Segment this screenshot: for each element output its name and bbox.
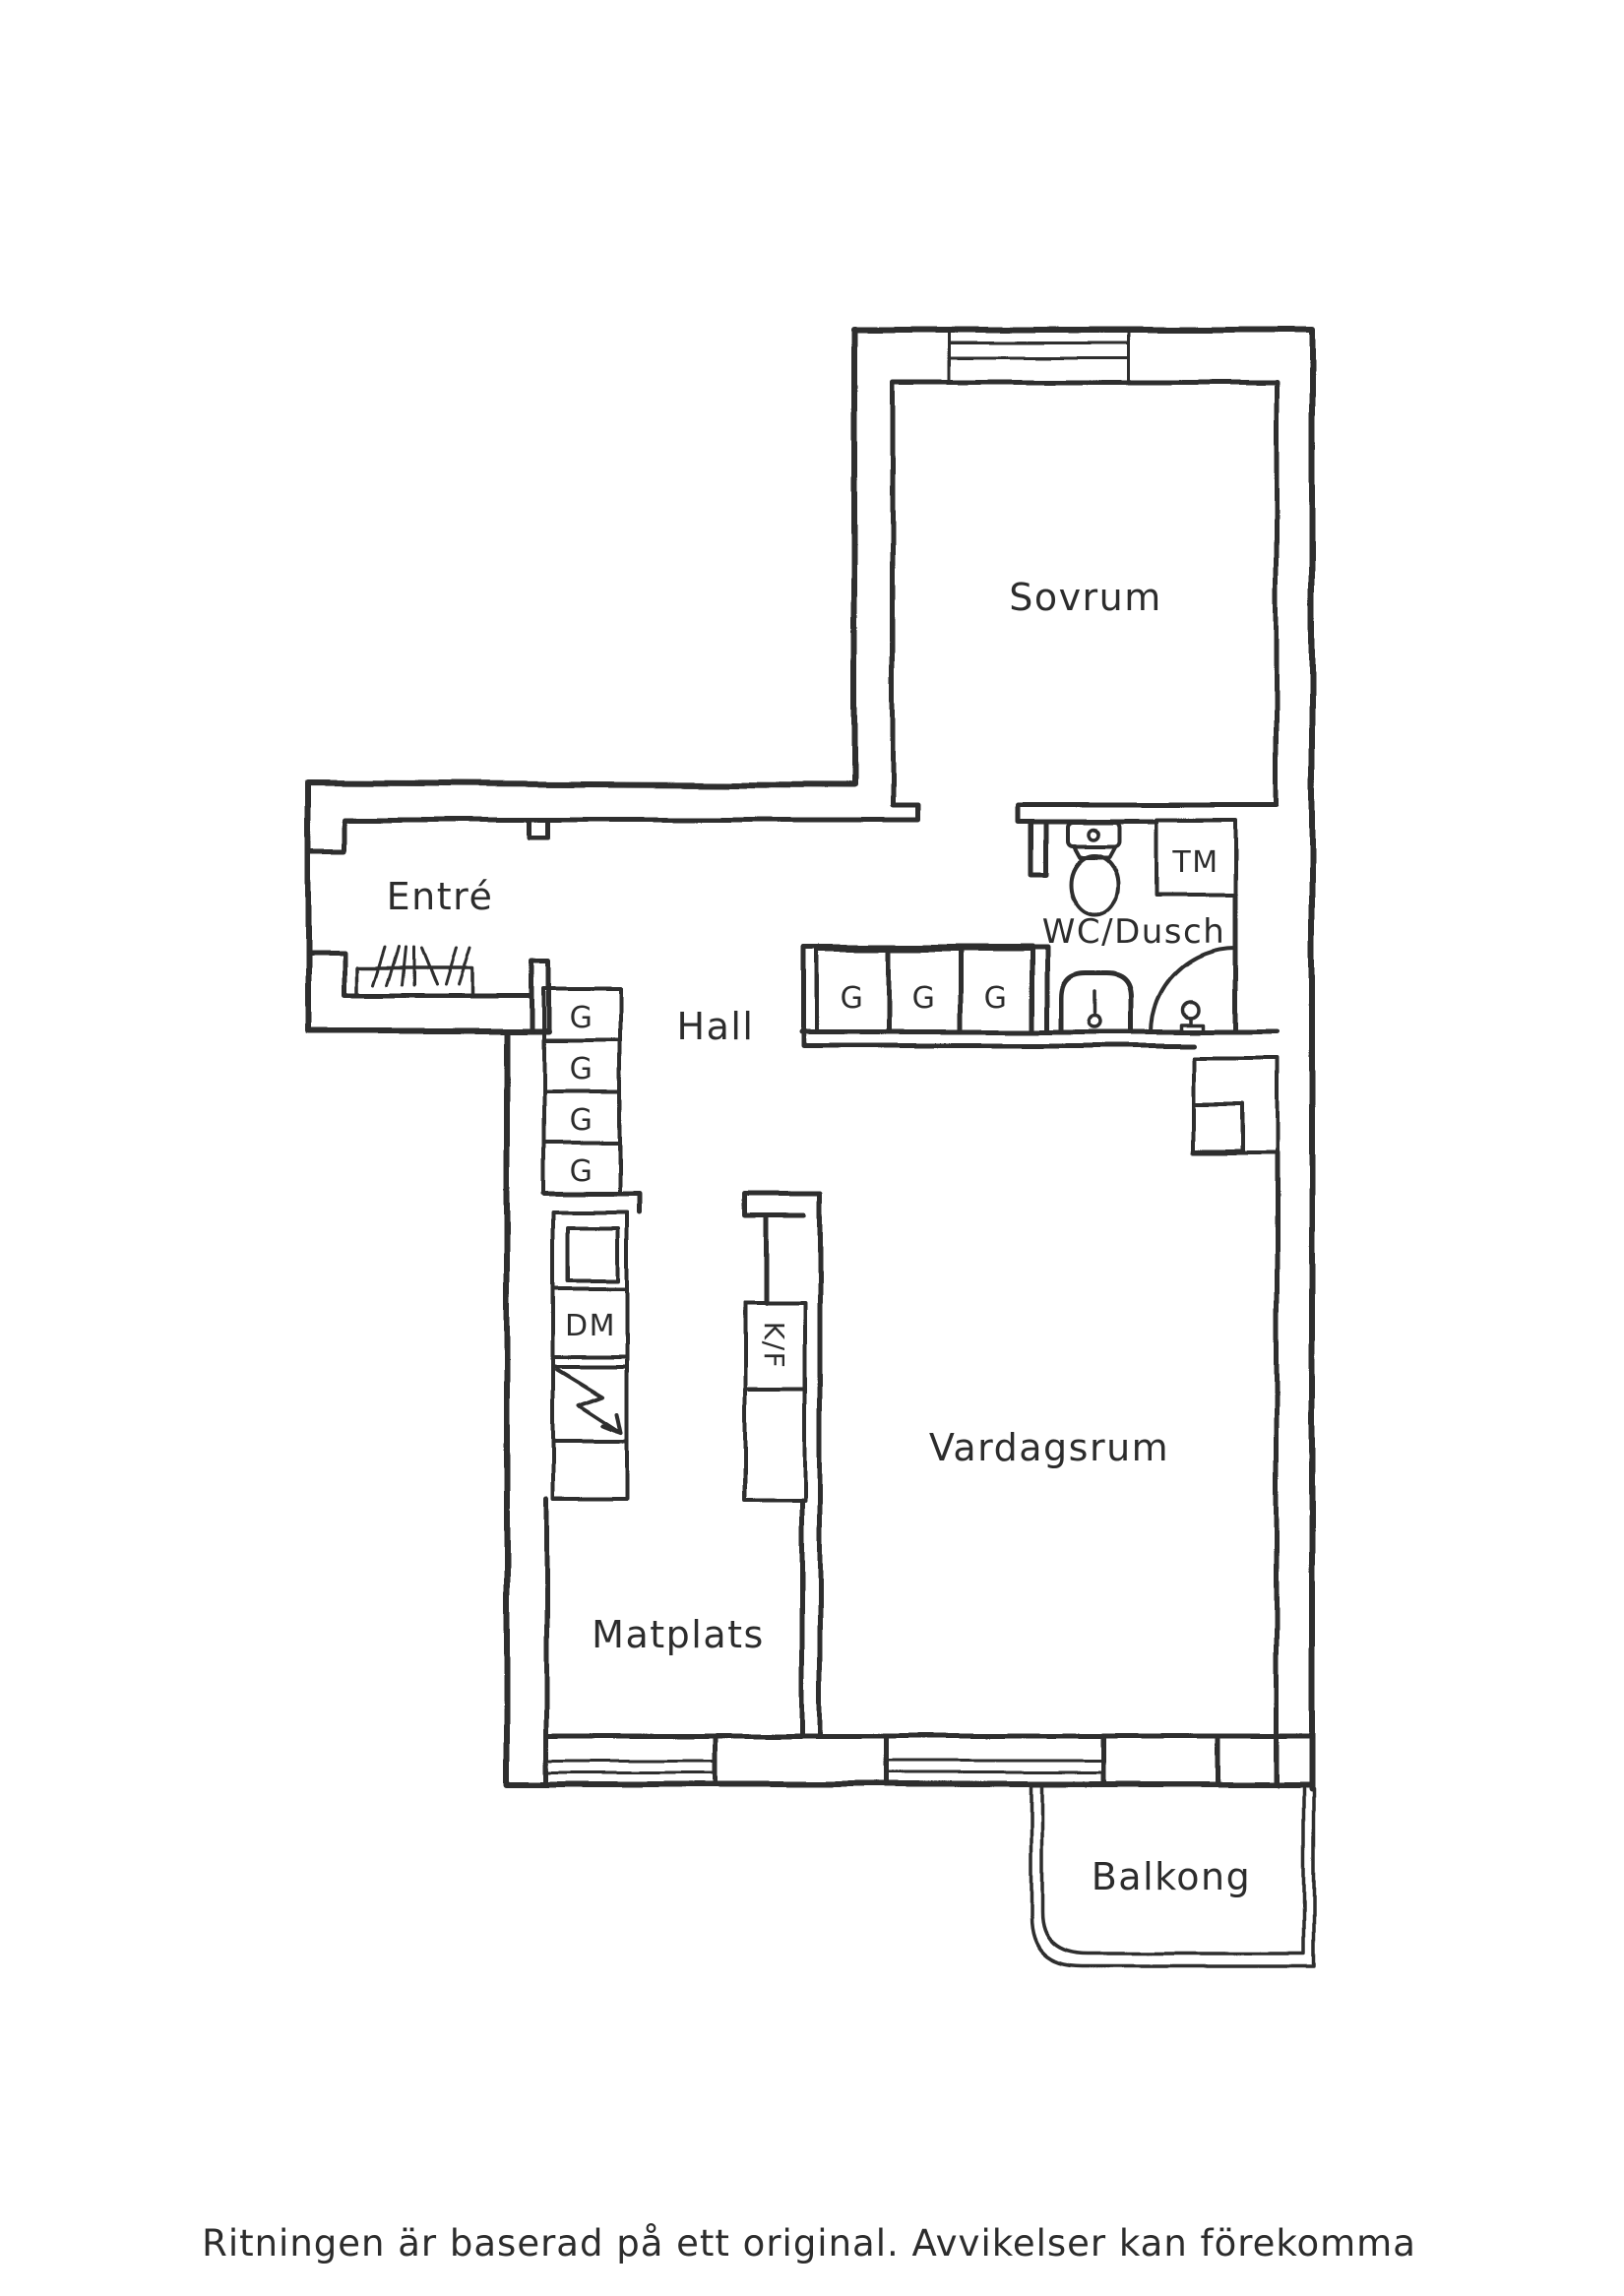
room-label-hall: Hall: [677, 1005, 755, 1048]
disclaimer-text: Ritningen är baserad på ett original. Av…: [202, 2222, 1416, 2265]
stove-lightning-icon: [557, 1369, 621, 1433]
fridge-freezer-label: K/F: [758, 1322, 790, 1369]
shaft-inner: [1194, 1104, 1242, 1151]
wardrobe-label: G: [570, 1001, 594, 1035]
dishwasher-label: DM: [565, 1309, 616, 1343]
room-label-wc-dusch: WC/Dusch: [1042, 912, 1226, 952]
floorplan-canvas: Sovrum Entré Hall WC/Dusch Vardagsrum Ma…: [0, 0, 1624, 2296]
wardrobe-label: G: [912, 981, 937, 1016]
sink-icon: [568, 1228, 618, 1281]
wardrobe-label: G: [570, 1154, 594, 1189]
basin-drain: [1090, 1015, 1101, 1026]
kitchen-counter: [553, 1212, 627, 1499]
sink-basin-icon: [1061, 973, 1132, 1031]
toilet-icon: [1068, 823, 1119, 914]
room-label-balkong: Balkong: [1092, 1855, 1252, 1898]
toilet-bowl: [1071, 855, 1118, 914]
toilet-flush-button: [1089, 830, 1098, 839]
wardrobe-label: G: [570, 1052, 594, 1086]
room-label-sovrum: Sovrum: [1009, 576, 1162, 619]
wardrobe-label: G: [841, 981, 865, 1016]
washing-machine-label: TM: [1171, 845, 1218, 880]
toilet-tank: [1068, 823, 1119, 846]
floorplan-page: Sovrum Entré Hall WC/Dusch Vardagsrum Ma…: [0, 0, 1624, 2296]
tall-cabinet-box: [745, 1390, 805, 1501]
floorplan-drawing: [308, 330, 1314, 1966]
wardrobe-label: G: [570, 1103, 594, 1138]
shower-head: [1183, 1002, 1199, 1018]
corner-shaft: [1194, 1058, 1277, 1153]
room-label-matplats: Matplats: [592, 1613, 765, 1656]
shower-icon: [1152, 949, 1235, 1031]
window-lines: [546, 330, 1129, 1772]
room-label-entre: Entré: [387, 875, 494, 918]
outer-walls: [308, 330, 1312, 1788]
room-label-vardagsrum: Vardagsrum: [929, 1426, 1169, 1469]
wardrobe-label: G: [984, 981, 1009, 1016]
